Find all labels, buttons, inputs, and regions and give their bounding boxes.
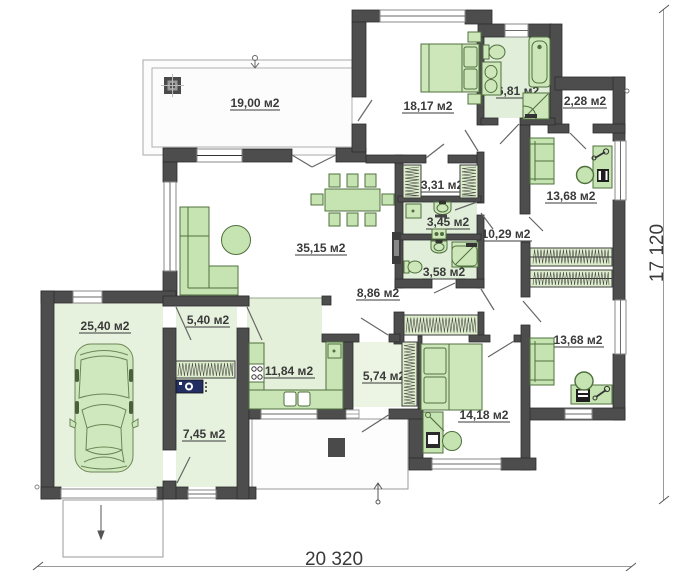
svg-text:13,68 м2: 13,68 м2	[554, 333, 603, 347]
svg-text:10,29 м2: 10,29 м2	[482, 227, 531, 241]
svg-text:5,74 м2: 5,74 м2	[363, 369, 406, 383]
svg-text:13,68 м2: 13,68 м2	[547, 189, 596, 203]
svg-text:5,40 м2: 5,40 м2	[187, 313, 230, 327]
svg-text:19,00 м2: 19,00 м2	[231, 96, 280, 110]
svg-text:25,40 м2: 25,40 м2	[81, 319, 130, 333]
svg-text:8,86 м2: 8,86 м2	[357, 286, 400, 300]
svg-text:7,45 м2: 7,45 м2	[183, 427, 226, 441]
svg-text:2,28 м2: 2,28 м2	[564, 94, 607, 108]
svg-text:35,15 м2: 35,15 м2	[297, 241, 346, 255]
svg-text:18,17 м2: 18,17 м2	[404, 99, 453, 113]
svg-text:3,31 м2: 3,31 м2	[421, 178, 464, 192]
svg-text:17 120: 17 120	[647, 224, 668, 282]
svg-text:20 320: 20 320	[305, 549, 363, 570]
svg-text:11,84 м2: 11,84 м2	[265, 364, 314, 378]
svg-text:3,45 м2: 3,45 м2	[427, 215, 470, 229]
